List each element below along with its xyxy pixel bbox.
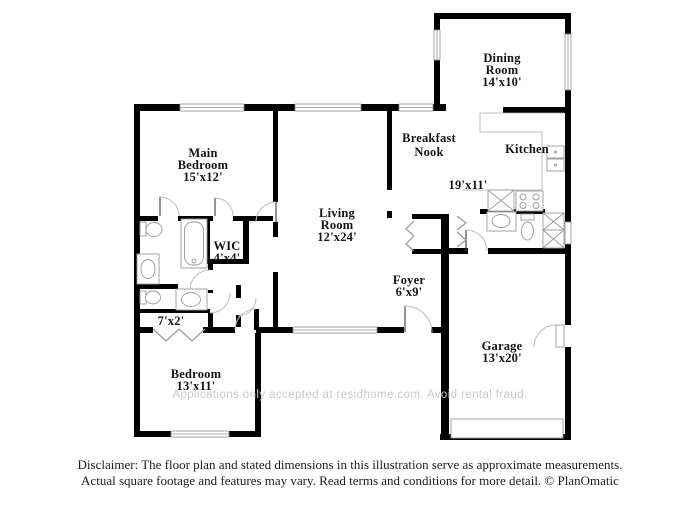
- window: [171, 431, 229, 437]
- bathroom-door: [160, 197, 179, 216]
- window: [565, 34, 571, 90]
- disclaimer-line-2: Actual square footage and features may v…: [81, 473, 619, 488]
- windows: [171, 30, 571, 437]
- fridge-icon: [488, 190, 514, 211]
- room-label-breakfast-nook: BreakfastNook: [402, 131, 456, 159]
- garage-side-door: [534, 325, 571, 347]
- room-label-main-bedroom: MainBedroom15'x12': [178, 146, 229, 184]
- room-label-garage: Garage13'x20': [482, 339, 523, 365]
- side-door: [565, 222, 571, 244]
- nook-door: [238, 298, 256, 316]
- toilet-icon: [521, 214, 534, 240]
- window: [399, 104, 433, 111]
- floor-plan-page: DiningRoom14'x10'BreakfastNookKitchen19'…: [0, 0, 700, 509]
- window: [434, 30, 440, 60]
- room-label-living-room: LivingRoom12'x24': [317, 206, 357, 244]
- washer-dryer-icon: [543, 213, 564, 248]
- room-label-kitchen-dims: 19'x11': [449, 178, 488, 192]
- front-door: [404, 306, 432, 333]
- wic-door: [215, 198, 233, 216]
- garage-door: [451, 419, 563, 438]
- room-label-hall-closet: 7'x2': [158, 314, 185, 328]
- floor-plan-canvas: DiningRoom14'x10'BreakfastNookKitchen19'…: [0, 0, 700, 509]
- bifold-door-icon: [457, 216, 466, 247]
- window: [295, 104, 361, 111]
- room-label-kitchen: Kitchen: [505, 142, 549, 156]
- half-bath-door: [466, 230, 487, 251]
- room-label-dining-room: DiningRoom14'x10': [482, 51, 522, 89]
- hall-door: [210, 293, 230, 313]
- bifold-door-icon: [406, 221, 414, 251]
- sink-icon: [176, 289, 207, 310]
- stove-icon: [516, 191, 543, 211]
- bifold-door-icon: [153, 329, 205, 341]
- watermark-text: Applications only accepted at residhome.…: [172, 389, 527, 401]
- disclaimer-line-1: Disclaimer: The floor plan and stated di…: [78, 457, 623, 472]
- sink-icon: [137, 254, 159, 284]
- bathtub-icon: [181, 219, 207, 268]
- room-label-foyer: Foyer6'x9': [393, 273, 425, 299]
- window: [180, 104, 244, 111]
- room-label-wic: WIC4'x4': [214, 239, 241, 265]
- window: [293, 327, 377, 333]
- toilet-icon: [140, 291, 161, 304]
- sink-icon: [487, 212, 516, 231]
- hall-bathroom-door: [190, 270, 210, 290]
- toilet-icon: [140, 222, 162, 237]
